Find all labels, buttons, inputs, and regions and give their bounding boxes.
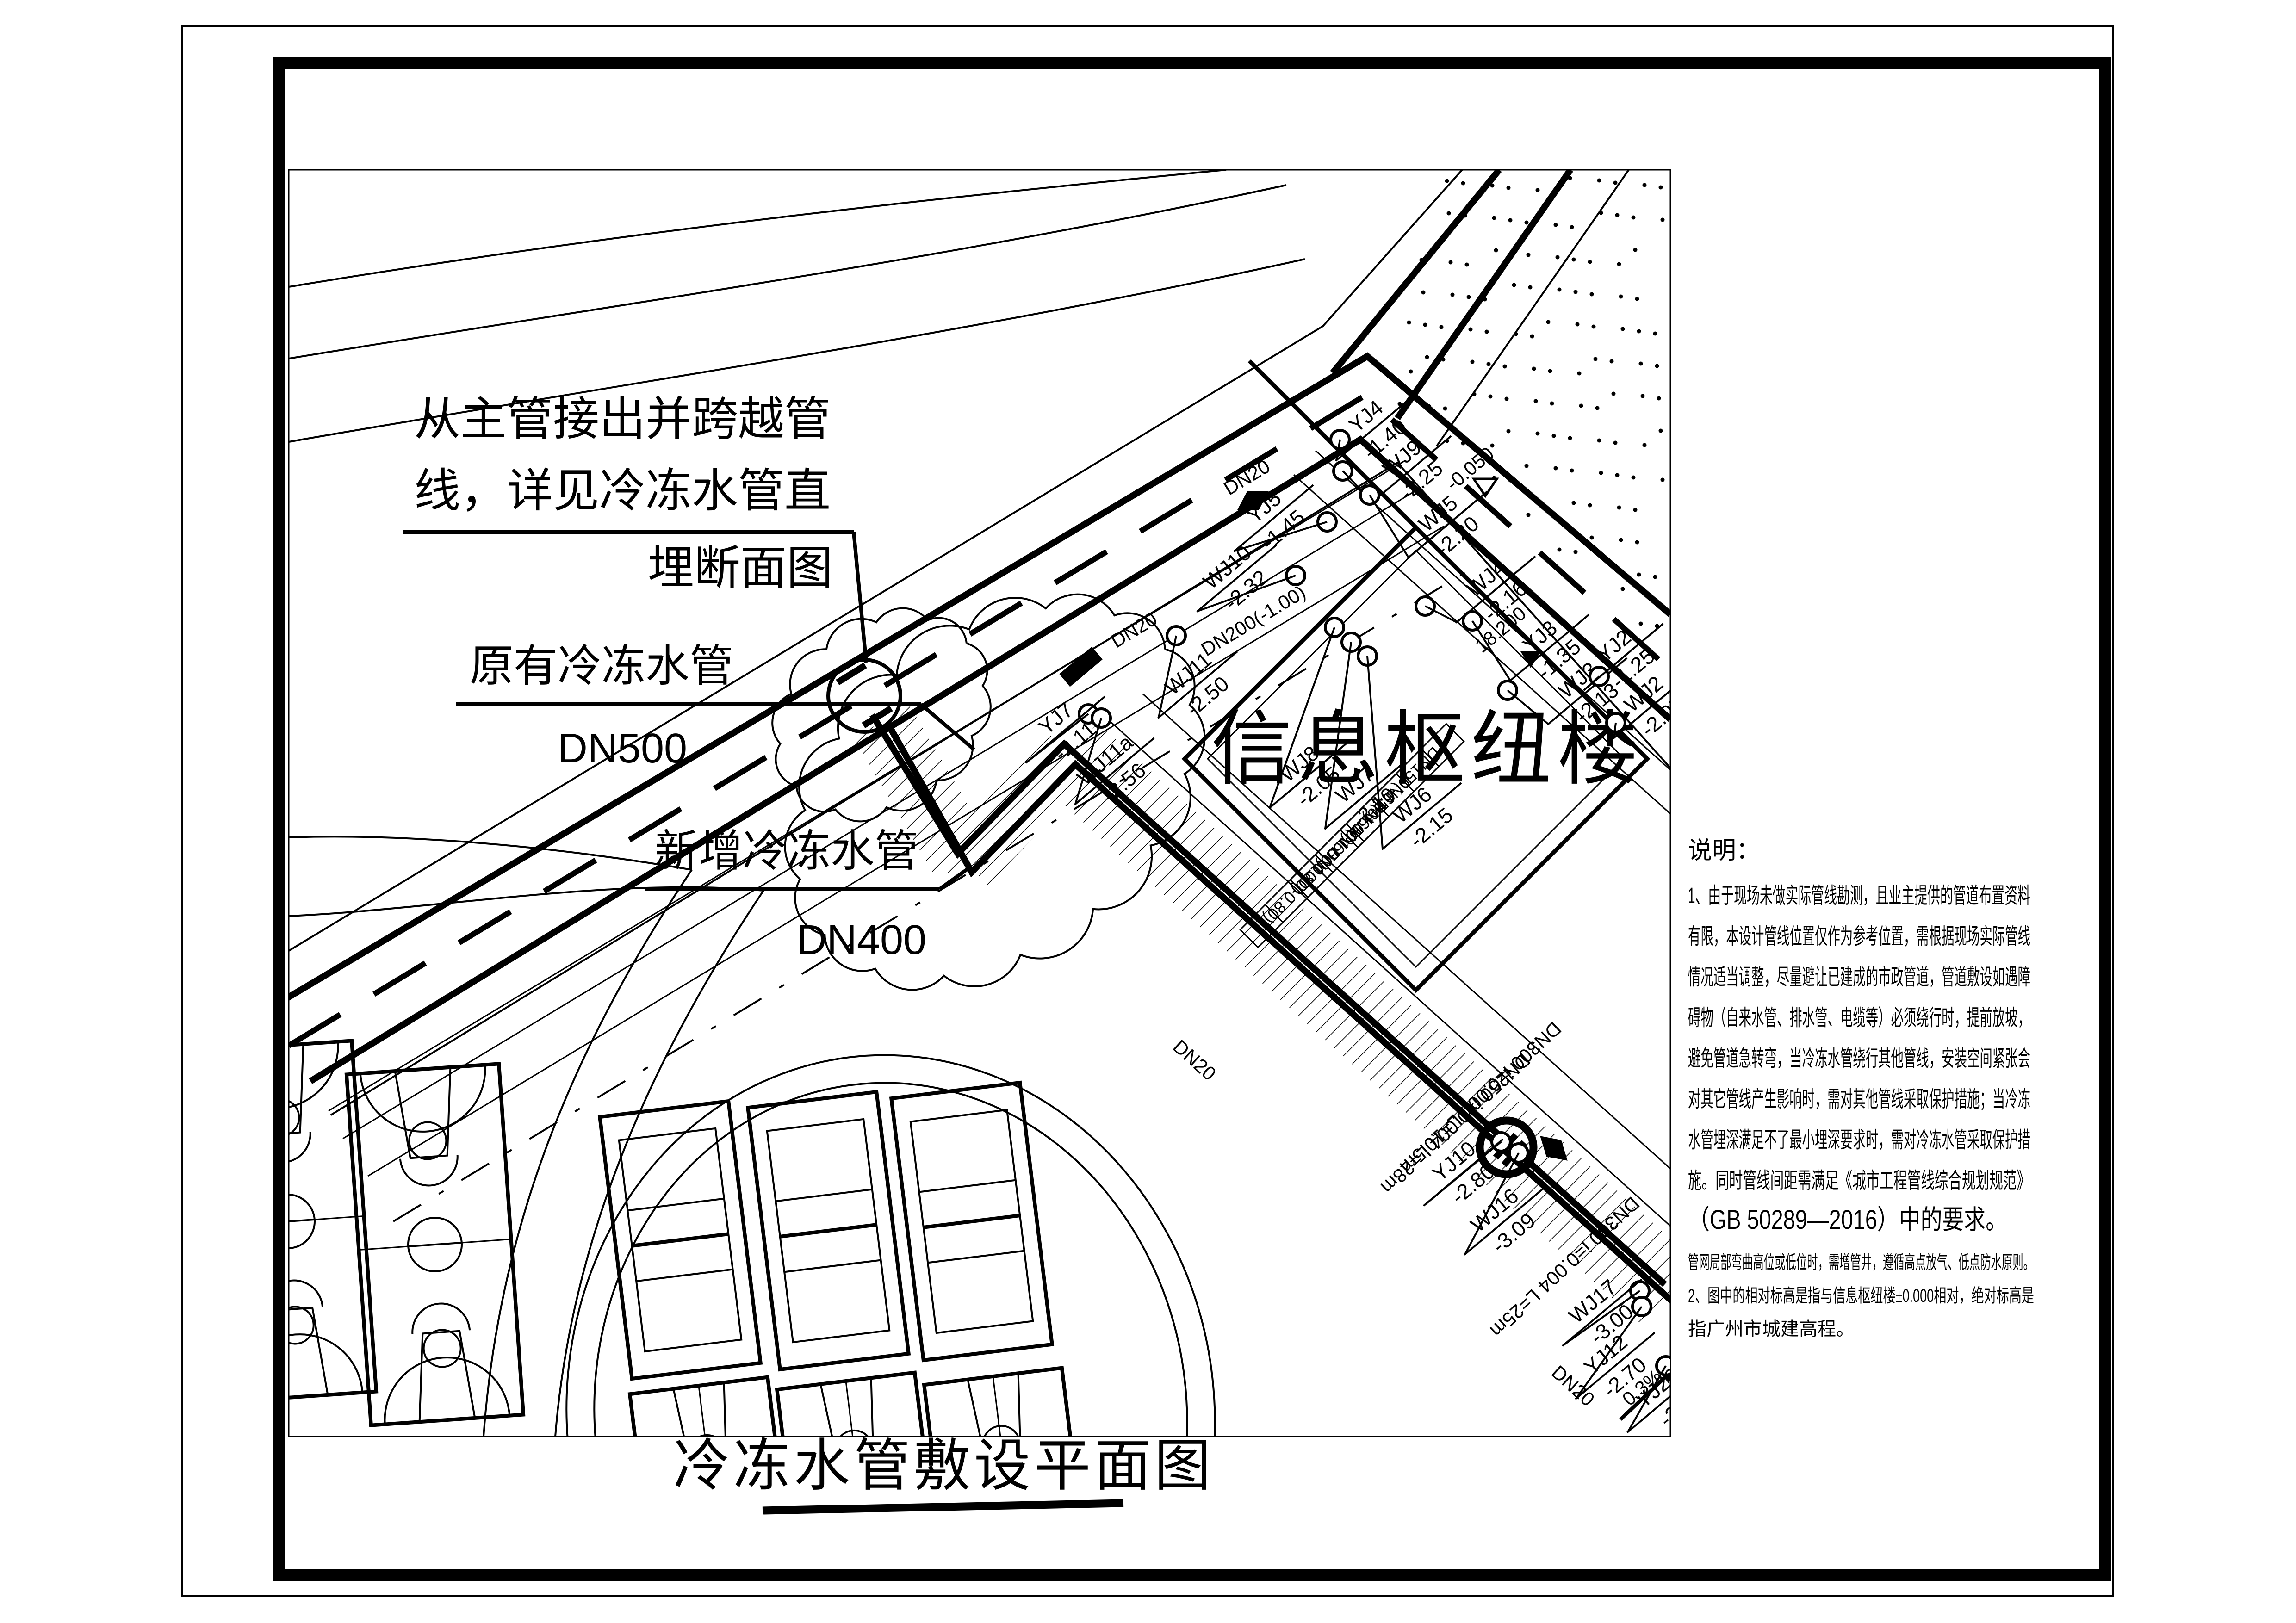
stipple-dot (1494, 248, 1498, 253)
stipple-dot (1489, 395, 1493, 399)
note-line: 碍物（自来水管、排水管、电缆等）必须绕行时，提前放坡， (1688, 1006, 2030, 1030)
stipple-dot (1612, 392, 1616, 396)
stipple-dot (1552, 191, 1556, 195)
stipple-dot (1532, 367, 1536, 371)
stipple-dot (1461, 181, 1465, 186)
stipple-dot (1599, 471, 1603, 475)
notes-heading: 说明： (1688, 837, 1760, 864)
note-line-small: 管网局部弯曲高位或低位时，需增管井，遵循高点放气、低点防水原则。 (1688, 1252, 2034, 1273)
stipple-dot (1621, 327, 1625, 331)
stipple-dot (1643, 183, 1647, 187)
note-line: 情况适当调整，尽量避让已建成的市政管道，管道敷设如遇障 (1688, 965, 2030, 990)
callout-tap-line2: 线，详见冷冻水管直 (414, 465, 831, 517)
stipple-dot (1615, 213, 1620, 217)
stipple-dot (1423, 323, 1427, 327)
stipple-dot (1590, 536, 1594, 540)
chilled-water-pipe-plan-sheet: 信息枢纽楼 (0, 0, 2296, 1623)
stipple-dot (1637, 329, 1641, 334)
stipple-dot (1570, 469, 1574, 473)
stipple-dot (1558, 548, 1562, 552)
stipple-dot (1617, 506, 1621, 510)
stipple-dot (1615, 473, 1620, 477)
stipple-dot (1440, 325, 1444, 329)
stipple-dot (1463, 214, 1467, 218)
stipple-dot (1590, 292, 1594, 297)
stipple-dot (1508, 478, 1513, 483)
stipple-dot (1597, 179, 1601, 183)
stipple-dot (1568, 176, 1572, 180)
stipple-dot (1505, 397, 1509, 401)
stipple-dot (1510, 251, 1514, 255)
stipple-dot (1617, 262, 1621, 266)
stipple-dot (1472, 392, 1477, 396)
stipple-dot (1467, 295, 1471, 299)
stipple-dot (1507, 186, 1511, 190)
stipple-dot (1595, 406, 1600, 410)
stipple-dot (1487, 362, 1491, 366)
stipple-dot (1507, 429, 1511, 434)
callout-tap-line3: 埋断面图 (648, 542, 833, 594)
stipple-dot (1427, 404, 1431, 409)
stipple-dot (1483, 297, 1487, 302)
stipple-dot (1492, 476, 1496, 480)
stipple-dot (1514, 332, 1518, 336)
note-line-small: 指广州市城建高程。 (1688, 1319, 1855, 1339)
stipple-dot (1528, 285, 1533, 290)
stipple-dot (1655, 364, 1659, 368)
stipple-dot (1508, 218, 1513, 223)
stipple-dot (1574, 550, 1578, 554)
stipple-dot (1451, 293, 1455, 297)
stipple-dot (1471, 360, 1475, 364)
stipple-dot (1556, 515, 1560, 520)
note-line: 对其它管线产生影响时，需对其他管线采取保护措施；当冷冻 (1688, 1087, 2030, 1112)
note-line: 有限，本设计管线位置仅作为参考位置，需根据现场实际管线 (1688, 924, 2030, 949)
stipple-dot (1441, 358, 1446, 362)
stipple-dot (1577, 372, 1582, 376)
note-line: 避免管道急转弯，当冷冻水管绕行其他管线，安装空间紧张会 (1688, 1047, 2030, 1071)
stipple-dot (1465, 263, 1469, 267)
drawing-title-text: 冷冻水管敷设平面图 (673, 1434, 1215, 1497)
stipple-dot (1613, 181, 1618, 185)
stipple-dot (1659, 186, 1663, 190)
stipple-dot (1632, 476, 1636, 480)
stipple-dot (1536, 188, 1540, 192)
new-pipe-size: DN400 (797, 917, 926, 963)
stipple-dot (1409, 370, 1413, 374)
stipple-dot (1546, 320, 1551, 324)
stipple-dot (1619, 538, 1623, 542)
stipple-dot (1572, 258, 1576, 262)
stipple-dot (1503, 365, 1507, 369)
stipple-dot (1447, 211, 1451, 216)
stipple-dot (1449, 260, 1453, 265)
note-line: （GB 50289—2016）中的要求。 (1688, 1205, 2007, 1235)
stipple-dot (1527, 253, 1531, 257)
stipple-dot (1525, 221, 1529, 225)
stipple-dot (1621, 587, 1625, 591)
stipple-dot (1558, 288, 1562, 292)
note-line-small: 2、图中的相对标高是指与信息枢纽楼±0.000相对，绝对标高是 (1688, 1286, 2034, 1306)
note-line: 1、由于现场未做实际管线勘测，且业主提供的管道布置资料 (1688, 884, 2030, 908)
stipple-dot (1632, 216, 1636, 220)
stipple-dot (1554, 466, 1558, 471)
stipple-dot (1639, 362, 1643, 366)
stipple-dot (1599, 211, 1603, 215)
stipple-dot (1637, 573, 1641, 577)
note-line: 施。同时管线间距需满足《城市工程管线综合规划规范》 (1688, 1169, 2030, 1193)
stipple-dot (1576, 322, 1580, 327)
stipple-dot (1653, 575, 1657, 579)
stipple-dot (1659, 429, 1663, 433)
stipple-dot (1512, 283, 1516, 287)
stipple-dot (1641, 394, 1645, 398)
stipple-dot (1530, 335, 1534, 339)
note-line: 水管埋深满足不了最小埋深要求时，需对冷冻水管采取保护措 (1688, 1128, 2030, 1152)
stipple-dot (1492, 216, 1496, 220)
stipple-dot (1407, 321, 1411, 325)
stipple-dot (1619, 295, 1623, 299)
callout-tap-line1: 从主管接出并跨越管 (414, 393, 831, 445)
existing-pipe-label: 原有冷冻水管 (470, 642, 733, 691)
stipple-dot (1657, 396, 1661, 401)
stipple-dot (1534, 399, 1538, 403)
stipple-dot (1443, 407, 1447, 411)
stipple-dot (1643, 443, 1647, 447)
stipple-dot (1570, 225, 1574, 229)
stipple-dot (1661, 218, 1665, 222)
stipple-dot (1550, 402, 1554, 406)
stipple-dot (1613, 441, 1618, 445)
stipple-dot (1421, 291, 1426, 295)
stipple-dot (1554, 223, 1558, 227)
stipple-dot (1490, 184, 1495, 188)
stipple-dot (1633, 248, 1638, 252)
stipple-dot (1661, 478, 1665, 482)
stipple-dot (1592, 325, 1596, 329)
stipple-dot (1633, 508, 1638, 512)
stipple-dot (1635, 540, 1639, 545)
stipple-dot (1597, 439, 1601, 443)
stipple-dot (1653, 332, 1657, 336)
stipple-dot (1588, 503, 1592, 508)
stipple-dot (1469, 328, 1473, 332)
stipple-dot (1525, 464, 1529, 468)
stipple-dot (1425, 355, 1429, 359)
stipple-dot (1574, 290, 1578, 294)
existing-pipe-size: DN500 (558, 725, 687, 772)
stipple-dot (1485, 330, 1489, 334)
stipple-dot (1639, 622, 1643, 626)
stipple-dot (1548, 369, 1552, 373)
stipple-dot (1572, 501, 1576, 505)
stipple-dot (1461, 441, 1465, 446)
stipple-dot (1380, 367, 1384, 372)
new-pipe-label: 新增冷冻水管 (655, 827, 918, 876)
stipple-dot (1568, 436, 1572, 440)
stipple-dot (1635, 297, 1639, 301)
stipple-dot (1552, 434, 1556, 438)
stipple-dot (1445, 179, 1449, 183)
stipple-dot (1556, 255, 1560, 260)
stipple-dot (1610, 359, 1614, 364)
stipple-dot (1579, 404, 1583, 408)
stipple-dot (1420, 258, 1424, 262)
stipple-dot (1490, 444, 1495, 448)
stipple-dot (1588, 260, 1592, 264)
stipple-dot (1527, 513, 1531, 517)
stipple-dot (1594, 357, 1598, 361)
stipple-dot (1536, 432, 1540, 436)
